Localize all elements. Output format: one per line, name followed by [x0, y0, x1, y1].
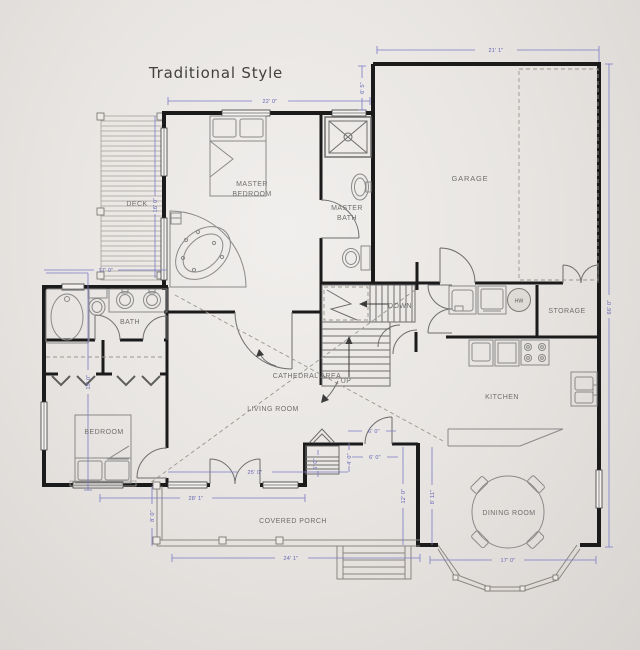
shower	[325, 117, 371, 157]
bath-toilet	[88, 289, 107, 316]
bay-window	[438, 545, 580, 591]
closet-hangers	[52, 376, 160, 385]
room-label-deck: DECK	[126, 201, 147, 208]
deck	[97, 113, 164, 280]
kitchen-peninsula	[448, 429, 563, 446]
dim-dining-left: 8' 11"	[430, 490, 436, 505]
room-label-covered-porch: COVERED PORCH	[259, 518, 327, 525]
room-label-living-room: LIVING ROOM	[247, 406, 299, 413]
kitchen-sink	[571, 372, 597, 406]
fireplace	[306, 429, 339, 474]
water-heater: HW	[508, 289, 531, 312]
dim-bedroom-bottom: 28' 1"	[189, 496, 204, 502]
dim-bath-top: 17' 0"	[99, 268, 114, 274]
room-label-dining-room: DINING ROOM	[482, 510, 535, 517]
dim-bay-bottom: 17' 0"	[501, 558, 516, 564]
dim-deck-height: 16' 0"	[153, 198, 159, 213]
bath-vanity	[109, 289, 167, 312]
dim-porch-left: 8' 0"	[150, 510, 156, 522]
room-label-stairs-up: UP	[341, 378, 352, 385]
garage-bay-outline	[519, 69, 598, 280]
room-label-master-bedroom-1: MASTER	[236, 181, 268, 188]
dim-fireplace-side: 5' 0"	[313, 458, 319, 470]
dim-nook-mid: 6' 0"	[369, 455, 381, 461]
dim-porch-right: 12' 0"	[401, 489, 407, 504]
dim-garage-offset: 6' 5"	[360, 82, 366, 94]
floorplan-page: HW	[0, 0, 640, 650]
room-label-bedroom: BEDROOM	[84, 429, 123, 436]
spa-tub	[165, 211, 246, 290]
bathtub	[46, 289, 89, 343]
room-label-bath: BATH	[120, 319, 140, 326]
dim-nook-top: 6' 0"	[368, 429, 380, 435]
room-label-master-bedroom-2: BEDROOM	[232, 191, 271, 198]
porch-steps	[337, 546, 411, 579]
dryer	[478, 286, 506, 314]
room-label-cathedral-area: CATHEDRAL AREA	[273, 373, 342, 380]
dim-left-side: 19' 0"	[86, 375, 92, 390]
dim-garage-top: 21' 1"	[489, 48, 504, 54]
room-label-garage: GARAGE	[452, 174, 489, 183]
room-label-stairs-down: DOWN	[388, 303, 412, 310]
stove	[521, 340, 549, 365]
dim-master-top: 22' 0"	[263, 99, 278, 105]
master-bath-sink	[352, 174, 372, 200]
dim-porch-bottom: 24' 1"	[284, 556, 299, 562]
kitchen-cabinets	[469, 340, 519, 366]
room-label-kitchen: KITCHEN	[485, 394, 519, 401]
bedroom-bed	[70, 415, 136, 486]
master-bath-toilet	[343, 246, 371, 270]
page-title: Traditional Style	[148, 64, 283, 82]
covered-porch-structure	[153, 482, 420, 546]
water-heater-label: HW	[515, 299, 524, 305]
floorplan-canvas: HW	[0, 0, 640, 650]
washer	[449, 286, 476, 314]
room-label-storage: STORAGE	[548, 308, 585, 315]
dim-right-side: 66' 0"	[607, 300, 613, 315]
dim-living-front: 25' 0"	[248, 470, 263, 476]
room-label-master-bath-2: BATH	[337, 215, 357, 222]
dim-nook-side: 4' 0"	[347, 453, 353, 465]
room-label-master-bath-1: MASTER	[331, 205, 363, 212]
cathedral-lines	[150, 290, 443, 483]
